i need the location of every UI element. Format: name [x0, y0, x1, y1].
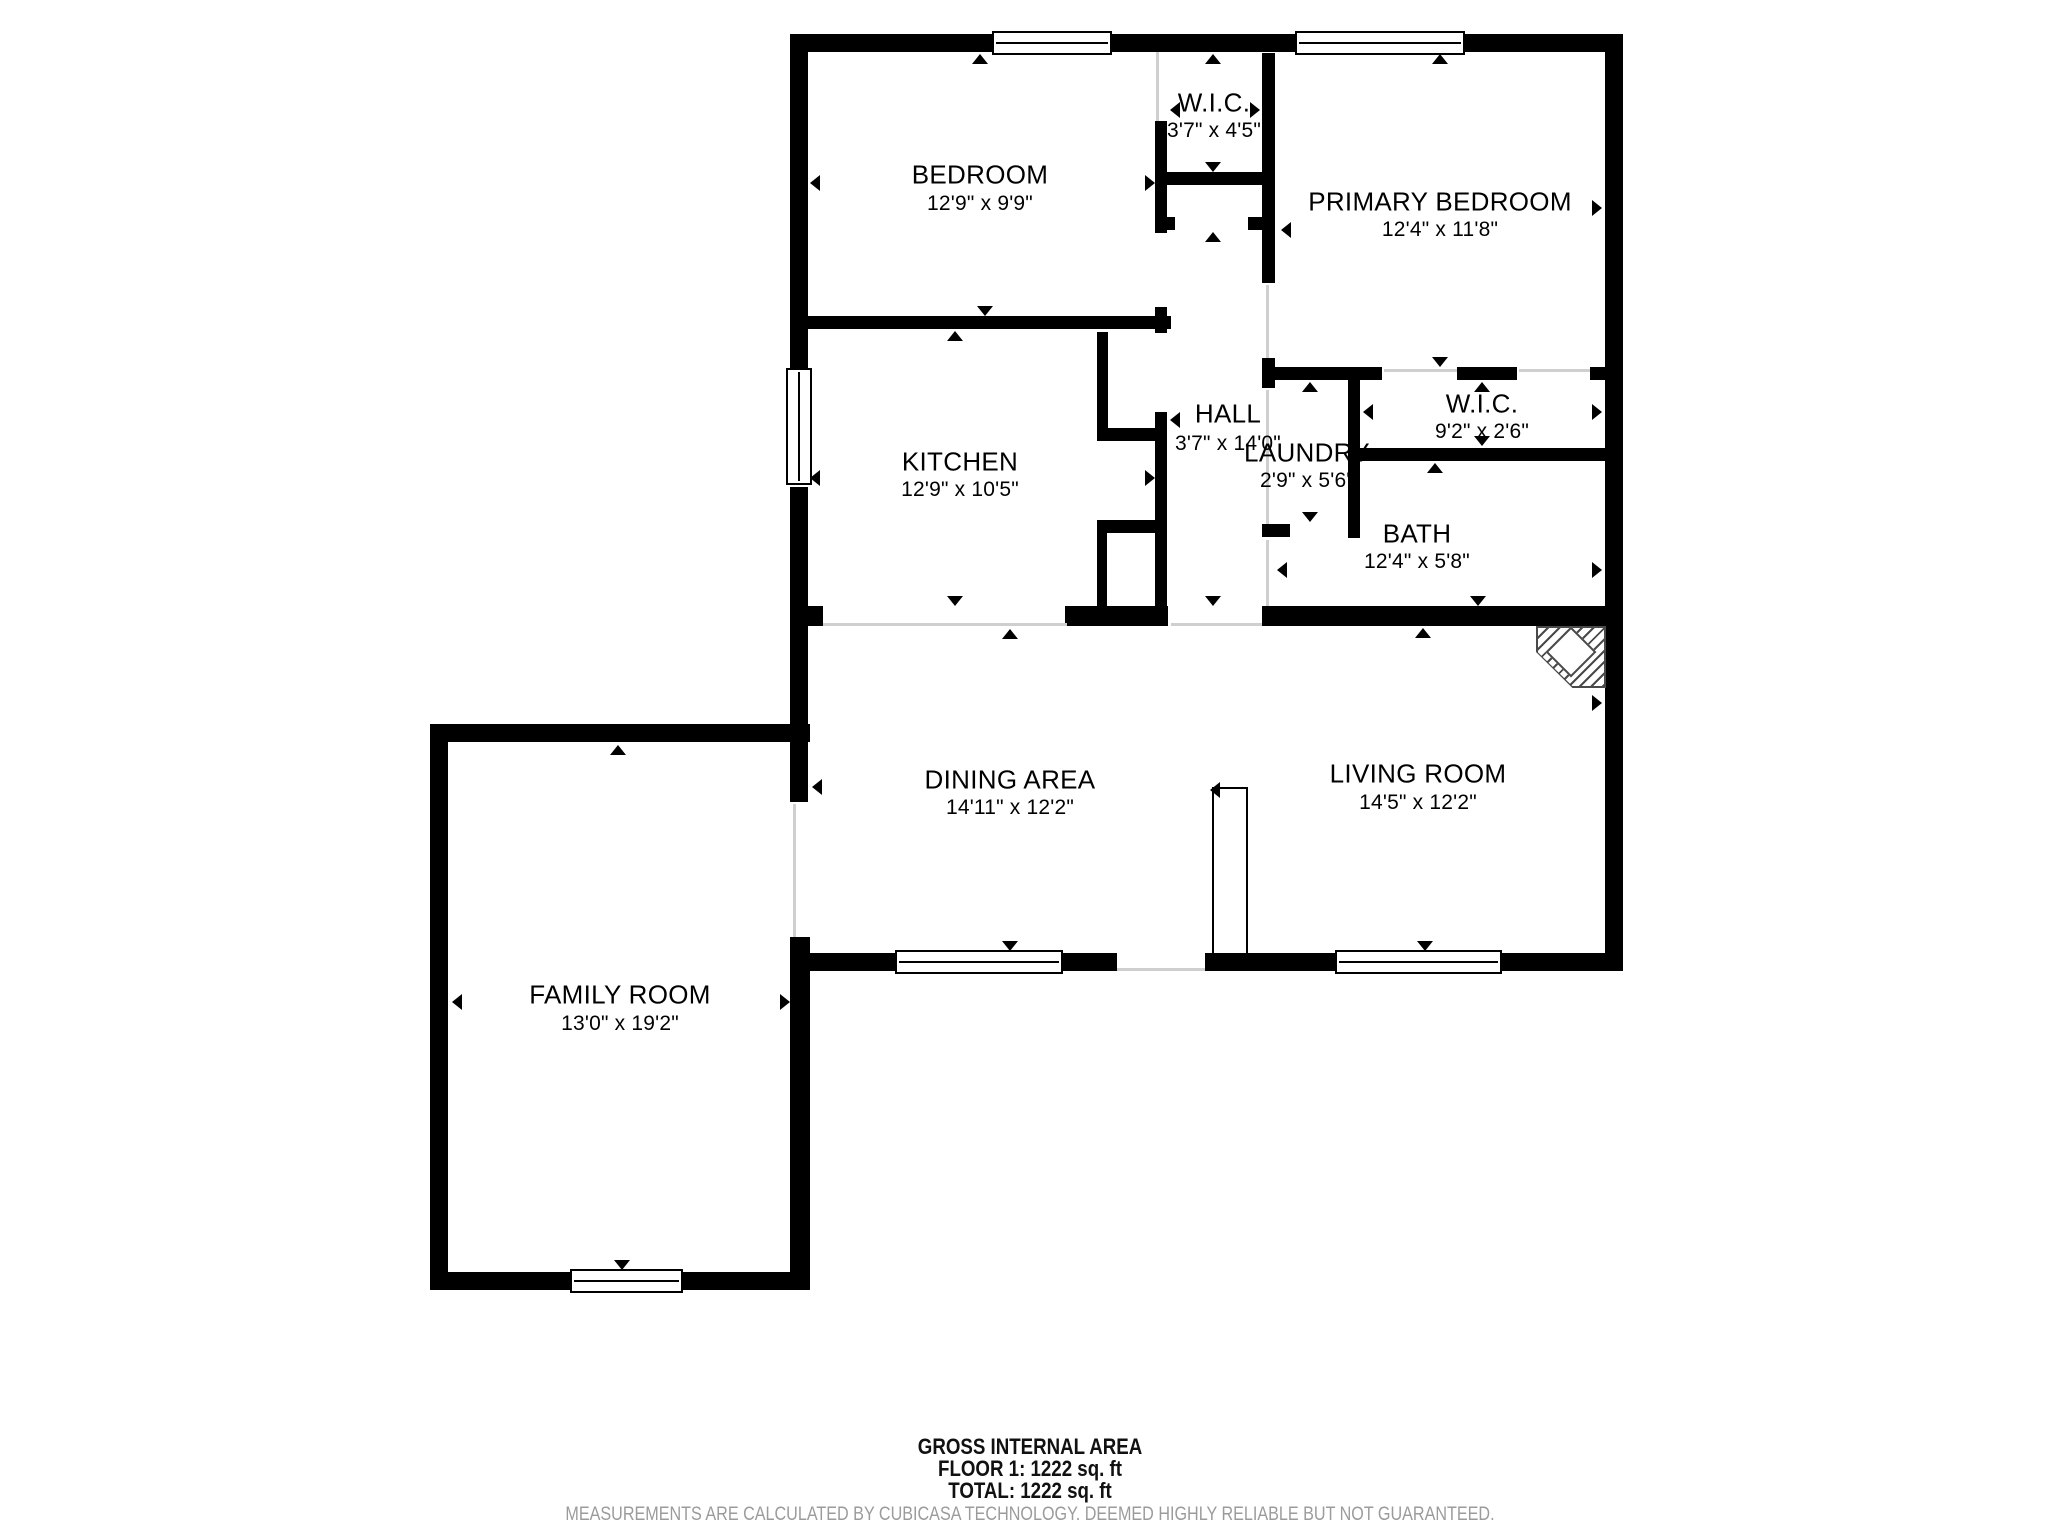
measure-tick-33: [1417, 941, 1433, 951]
measure-tick-10: [1281, 222, 1291, 238]
wall-kitchen-bottom: [1065, 606, 1168, 626]
measure-tick-9: [1432, 357, 1448, 367]
measure-tick-19: [1302, 382, 1318, 392]
wall-main-bottom-b: [1063, 953, 1117, 971]
room-label-living-room: LIVING ROOM: [1330, 759, 1507, 790]
wall-bedroom-kitchen: [808, 316, 1171, 329]
family-window-pane: [574, 1280, 679, 1282]
living-window-pane: [1339, 961, 1498, 963]
wall-hall-closet-left: [1097, 332, 1108, 428]
wall-vestibule-stub-left: [1155, 217, 1175, 230]
bedroom-window: [992, 31, 1112, 55]
measure-tick-2: [810, 175, 820, 191]
wall-laundry-bottom-stub: [1262, 524, 1290, 537]
dining-window: [895, 950, 1063, 974]
living-window: [1335, 950, 1502, 974]
front-door-leaf: [1212, 787, 1248, 955]
measure-tick-32: [1415, 628, 1431, 638]
dining-window-pane: [899, 961, 1059, 963]
room-dims-family-room: 13'0" x 19'2": [561, 1012, 679, 1036]
room-label-family-room: FAMILY ROOM: [529, 980, 710, 1011]
room-dims-living-room: 14'5" x 12'2": [1359, 791, 1477, 815]
total-area: TOTAL: 1222 sq. ft: [565, 1480, 1494, 1502]
room-dims-bath: 12'4" x 5'8": [1364, 550, 1470, 574]
measure-tick-13: [947, 596, 963, 606]
wall-main-left-upper: [790, 34, 808, 370]
wall-bath-bottom: [1262, 606, 1623, 626]
measure-tick-25: [1427, 463, 1443, 473]
measure-tick-23: [1363, 404, 1373, 420]
opening-threshold-6: [823, 623, 1067, 626]
measure-tick-30: [1002, 941, 1018, 951]
wall-main-bottom-c: [1205, 953, 1335, 971]
area-summary: GROSS INTERNAL AREA FLOOR 1: 1222 sq. ft…: [565, 1436, 1494, 1528]
wall-family-top: [430, 724, 810, 742]
kitchen-window: [786, 368, 812, 485]
measure-tick-1: [977, 306, 993, 316]
room-dims-wic-top: 3'7" x 4'5": [1167, 119, 1261, 143]
wall-wic-top-bottom: [1165, 172, 1275, 185]
measure-tick-39: [780, 994, 790, 1010]
wall-main-bottom-d: [1502, 953, 1623, 971]
kitchen-window-pane: [798, 372, 800, 481]
wall-hall-left-a: [1155, 307, 1167, 333]
room-label-primary-bedroom: PRIMARY BEDROOM: [1308, 187, 1572, 218]
wall-main-left-mid: [790, 487, 808, 802]
room-label-laundry: LAUNDRY: [1244, 438, 1370, 469]
opening-threshold-7: [1171, 623, 1262, 626]
room-label-wic-top: W.I.C.: [1178, 88, 1251, 119]
wall-hall-right-a: [1262, 53, 1275, 283]
measure-tick-28: [1592, 562, 1602, 578]
floor-plan: BEDROOM12'9" x 9'9"W.I.C.3'7" x 4'5"PRIM…: [0, 0, 2048, 1536]
measure-tick-14: [810, 470, 820, 486]
opening-threshold-8: [793, 804, 796, 937]
measure-tick-37: [614, 1260, 630, 1270]
room-label-dining-area: DINING AREA: [925, 765, 1096, 796]
wall-kitchen-bottom-stub: [790, 606, 823, 626]
measure-tick-35: [1592, 695, 1602, 711]
opening-threshold-5: [1519, 369, 1590, 372]
wall-chase-left: [1097, 533, 1107, 610]
family-window: [570, 1269, 683, 1293]
measure-tick-3: [1145, 175, 1155, 191]
measure-tick-31: [812, 779, 822, 795]
wall-hall-closet-bottom: [1097, 428, 1157, 441]
floor-plan-screenshot: BEDROOM12'9" x 9'9"W.I.C.3'7" x 4'5"PRIM…: [0, 0, 2048, 1536]
measure-tick-11: [1592, 200, 1602, 216]
wall-bath-top: [1348, 448, 1623, 461]
measure-tick-38: [452, 994, 462, 1010]
primary-window: [1295, 31, 1465, 55]
opening-threshold-0: [1156, 52, 1159, 121]
room-label-kitchen: KITCHEN: [902, 447, 1018, 478]
room-dims-kitchen: 12'9" x 10'5": [901, 478, 1019, 502]
wall-main-bottom-a: [790, 953, 895, 971]
room-dims-wic-right: 9'2" x 2'6": [1435, 420, 1529, 444]
wall-hall-left-b: [1155, 412, 1167, 626]
measure-tick-0: [972, 54, 988, 64]
opening-threshold-1: [1266, 285, 1269, 358]
room-label-bedroom: BEDROOM: [912, 160, 1048, 191]
measure-tick-4: [1205, 54, 1221, 64]
opening-threshold-9: [1117, 968, 1205, 971]
room-dims-dining-area: 14'11" x 12'2": [946, 796, 1074, 820]
room-label-wic-right: W.I.C.: [1446, 389, 1519, 420]
room-dims-primary-bedroom: 12'4" x 11'8": [1382, 218, 1498, 242]
wall-utility-top-c: [1590, 367, 1623, 380]
measure-tick-8: [1432, 54, 1448, 64]
measure-tick-36: [610, 745, 626, 755]
measure-tick-12: [947, 331, 963, 341]
room-label-bath: BATH: [1383, 519, 1452, 550]
measure-tick-5: [1205, 162, 1221, 172]
room-dims-laundry: 2'9" x 5'6": [1260, 469, 1354, 493]
measure-tick-15: [1145, 470, 1155, 486]
wall-utility-top-a: [1262, 367, 1382, 380]
measure-tick-17: [1205, 596, 1221, 606]
wall-utility-top-b: [1457, 367, 1517, 380]
measure-tick-7: [1250, 102, 1260, 118]
wall-chase-top: [1097, 520, 1167, 533]
corner-fireplace: [1536, 626, 1606, 688]
wall-shared-left-lower: [790, 937, 810, 1290]
room-label-hall: HALL: [1195, 399, 1261, 430]
primary-window-pane: [1299, 42, 1461, 44]
opening-threshold-4: [1384, 369, 1457, 372]
gross-internal-area-title: GROSS INTERNAL AREA: [565, 1436, 1494, 1458]
measure-tick-27: [1277, 562, 1287, 578]
bedroom-window-pane: [996, 42, 1108, 44]
measure-tick-18: [1170, 412, 1180, 428]
measure-tick-34: [1210, 782, 1220, 798]
wall-family-left: [430, 724, 448, 1290]
room-dims-bedroom: 12'9" x 9'9": [927, 192, 1033, 216]
wall-main-right: [1605, 34, 1623, 971]
floor-1-area: FLOOR 1: 1222 sq. ft: [565, 1458, 1494, 1480]
opening-threshold-3: [1266, 540, 1269, 606]
measurements-disclaimer: MEASUREMENTS ARE CALCULATED BY CUBICASA …: [565, 1502, 1494, 1528]
measure-tick-16: [1205, 232, 1221, 242]
wall-main-top: [790, 34, 1623, 52]
measure-tick-29: [1002, 629, 1018, 639]
measure-tick-24: [1592, 404, 1602, 420]
measure-tick-20: [1302, 512, 1318, 522]
measure-tick-26: [1470, 596, 1486, 606]
